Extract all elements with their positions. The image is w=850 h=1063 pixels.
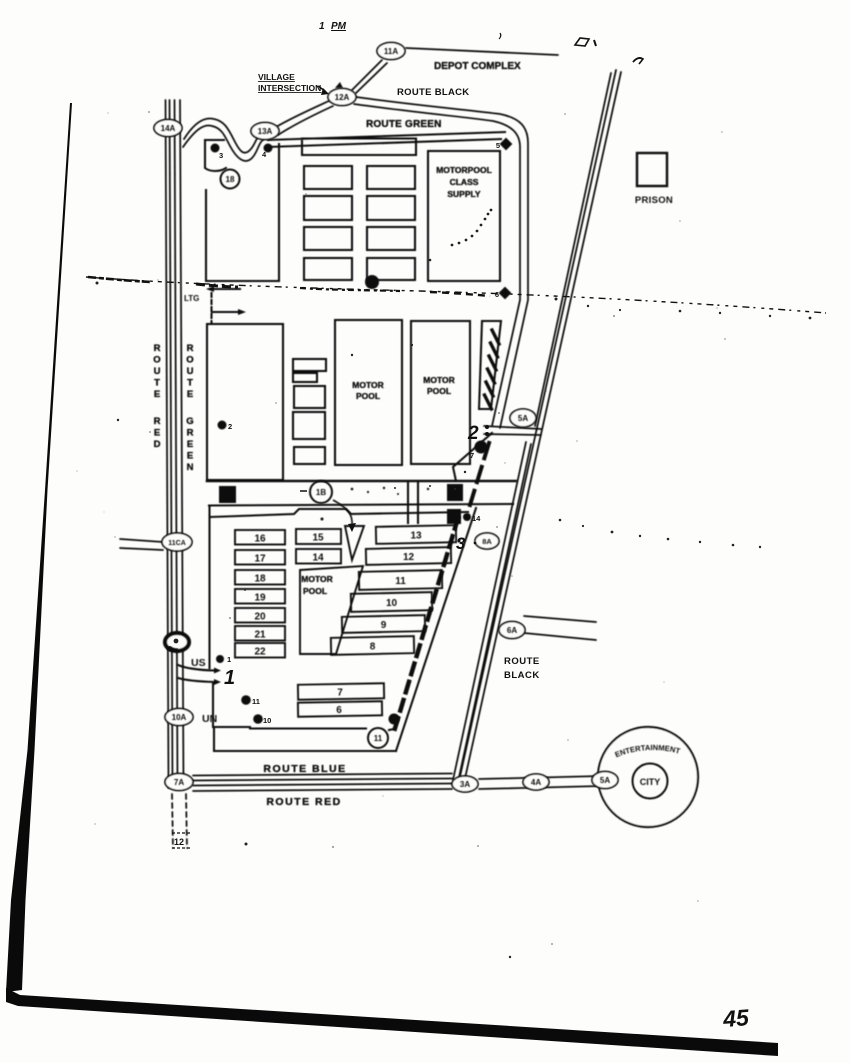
svg-text:G: G bbox=[186, 416, 193, 427]
svg-text:8A: 8A bbox=[482, 537, 492, 546]
svg-text:O: O bbox=[186, 355, 193, 366]
svg-text:SUPPLY: SUPPLY bbox=[447, 189, 481, 199]
svg-text:US: US bbox=[191, 657, 206, 669]
svg-text:11CA: 11CA bbox=[168, 540, 186, 547]
svg-text:R: R bbox=[187, 343, 194, 354]
svg-text:14A: 14A bbox=[161, 124, 176, 133]
svg-text:45: 45 bbox=[721, 1004, 751, 1032]
svg-text:7: 7 bbox=[470, 451, 474, 460]
svg-text:PRISON: PRISON bbox=[635, 195, 673, 206]
svg-text:O: O bbox=[153, 355, 160, 366]
svg-text:ROUTE BLACK: ROUTE BLACK bbox=[397, 87, 469, 98]
svg-text:E: E bbox=[187, 389, 193, 400]
svg-text:E: E bbox=[154, 389, 160, 400]
svg-text:7: 7 bbox=[337, 688, 343, 699]
svg-text:ROUTE: ROUTE bbox=[504, 656, 540, 667]
svg-text:1B: 1B bbox=[316, 488, 326, 497]
svg-text:6: 6 bbox=[336, 705, 342, 716]
svg-text:12: 12 bbox=[174, 837, 184, 847]
svg-text:3: 3 bbox=[456, 534, 466, 553]
svg-text:VILLAGE: VILLAGE bbox=[258, 72, 295, 82]
svg-text:10A: 10A bbox=[172, 713, 187, 722]
svg-text:12A: 12A bbox=[335, 93, 350, 102]
svg-text:14: 14 bbox=[472, 514, 481, 523]
svg-text:11: 11 bbox=[374, 734, 383, 743]
svg-text:5: 5 bbox=[496, 141, 500, 150]
svg-text:POOL: POOL bbox=[427, 386, 451, 396]
svg-text:3A: 3A bbox=[460, 780, 470, 789]
svg-text:INTERSECTION: INTERSECTION bbox=[258, 83, 321, 93]
svg-text:T: T bbox=[154, 378, 160, 389]
svg-text:E: E bbox=[187, 439, 193, 450]
svg-text:1: 1 bbox=[319, 21, 325, 32]
svg-text:18: 18 bbox=[226, 175, 235, 184]
svg-text:9: 9 bbox=[381, 620, 387, 631]
svg-text:E: E bbox=[187, 451, 193, 462]
svg-text:CITY: CITY bbox=[640, 777, 661, 787]
svg-text:POOL: POOL bbox=[356, 391, 380, 401]
svg-text:DEPOT COMPLEX: DEPOT COMPLEX bbox=[434, 61, 521, 72]
svg-text:10: 10 bbox=[386, 598, 398, 609]
svg-text:MOTORPOOL: MOTORPOOL bbox=[436, 165, 492, 175]
svg-text:11: 11 bbox=[395, 576, 406, 587]
svg-text:UN: UN bbox=[202, 713, 217, 725]
svg-text:11: 11 bbox=[252, 697, 260, 706]
svg-text:U: U bbox=[154, 366, 161, 377]
svg-text:1: 1 bbox=[227, 655, 231, 664]
svg-text:E: E bbox=[154, 428, 160, 439]
svg-text:6A: 6A bbox=[507, 626, 517, 635]
svg-text:ROUTE GREEN: ROUTE GREEN bbox=[366, 119, 442, 130]
svg-text:CLASS: CLASS bbox=[450, 177, 479, 187]
svg-text:19: 19 bbox=[254, 593, 266, 604]
svg-text:7A: 7A bbox=[174, 778, 184, 787]
svg-text:U: U bbox=[187, 366, 194, 377]
svg-text:6: 6 bbox=[495, 290, 499, 299]
svg-text:R: R bbox=[187, 428, 194, 439]
svg-text:8: 8 bbox=[370, 642, 376, 653]
svg-text:4A: 4A bbox=[531, 778, 541, 787]
svg-text:LTG: LTG bbox=[184, 294, 199, 303]
svg-text:16: 16 bbox=[254, 534, 266, 545]
svg-text:13: 13 bbox=[410, 531, 422, 542]
svg-text:18: 18 bbox=[254, 574, 266, 585]
svg-text:1: 1 bbox=[224, 667, 235, 689]
svg-text:15: 15 bbox=[312, 533, 324, 544]
svg-text:D: D bbox=[154, 439, 161, 450]
svg-text:MOTOR: MOTOR bbox=[352, 380, 383, 390]
svg-text:R: R bbox=[154, 343, 161, 354]
svg-text:10: 10 bbox=[263, 716, 271, 725]
svg-text:20: 20 bbox=[254, 612, 266, 623]
svg-text:11A: 11A bbox=[384, 47, 398, 56]
svg-text:ROUTE RED: ROUTE RED bbox=[266, 796, 341, 808]
svg-text:21: 21 bbox=[254, 630, 266, 641]
svg-text:2: 2 bbox=[467, 423, 479, 444]
svg-text:T: T bbox=[187, 378, 193, 389]
svg-text:2: 2 bbox=[228, 422, 232, 431]
svg-text:14: 14 bbox=[312, 553, 324, 564]
svg-text:13A: 13A bbox=[258, 127, 273, 136]
svg-text:17: 17 bbox=[254, 554, 266, 565]
svg-text:N: N bbox=[187, 462, 194, 473]
svg-text:3: 3 bbox=[219, 151, 223, 160]
svg-text:POOL: POOL bbox=[303, 586, 327, 596]
svg-text:12: 12 bbox=[403, 552, 415, 563]
svg-text:PM: PM bbox=[331, 21, 347, 32]
svg-text:MOTOR: MOTOR bbox=[301, 574, 332, 584]
svg-text:5A: 5A bbox=[600, 776, 610, 785]
svg-text:MOTOR: MOTOR bbox=[423, 375, 454, 385]
svg-text:ROUTE BLUE: ROUTE BLUE bbox=[263, 763, 346, 775]
svg-text:BLACK: BLACK bbox=[504, 670, 540, 681]
svg-text:22: 22 bbox=[254, 647, 266, 658]
svg-text:R: R bbox=[154, 416, 161, 427]
svg-text:5A: 5A bbox=[518, 414, 528, 423]
